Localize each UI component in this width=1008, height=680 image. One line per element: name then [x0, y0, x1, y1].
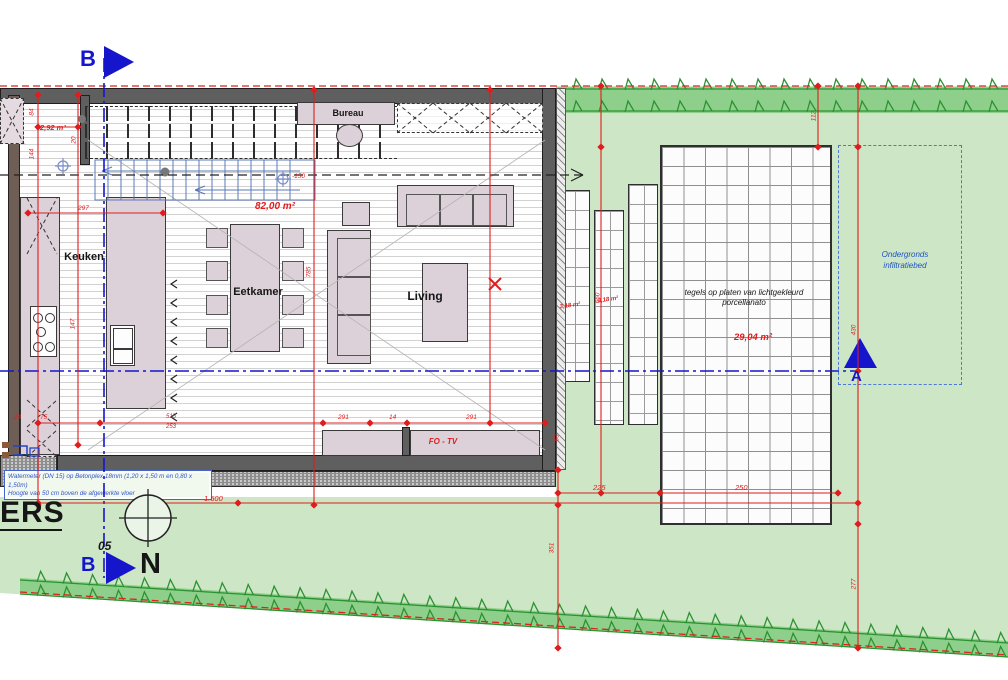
- dimension-label: 75: [40, 414, 47, 421]
- dimension-label: 84: [29, 108, 36, 115]
- dimension-label: 1.500: [204, 494, 223, 503]
- area-label-storage: 2,92 m²: [40, 123, 84, 132]
- level-value: -150: [292, 173, 305, 180]
- section-marker-b-top: B: [80, 46, 96, 72]
- cooktop-burners: [34, 314, 55, 352]
- sheet-number: 05: [98, 539, 111, 553]
- room-label-keuken: Keuken: [52, 251, 116, 263]
- dimension-label: 144: [29, 149, 36, 160]
- dimension-label: 20: [71, 136, 78, 143]
- watermeter-symbols: [2, 442, 39, 458]
- dimension-label: 430: [851, 325, 858, 336]
- terrace-material-label: tegels op platen van lichtgekleurd porce…: [664, 288, 824, 308]
- section-arrow-b-bottom: [106, 552, 136, 584]
- bar-stools: [171, 280, 177, 421]
- dimension-label: 250: [735, 483, 748, 492]
- floor-plan-canvas: Watermeter (DN 15) op Betonplex 18mm (1,…: [0, 0, 1008, 680]
- survey-circle: [119, 489, 177, 547]
- dimension-label: 515: [166, 414, 176, 420]
- dimension-label: 63: [554, 434, 561, 441]
- dimension-label: 785: [306, 267, 313, 278]
- infiltration-label-2: infiltratiebed: [860, 261, 950, 270]
- dimension-label: 253: [166, 424, 176, 430]
- title-block-text: ERS: [0, 497, 62, 531]
- north-label: N: [140, 548, 161, 581]
- dimension-label: 291: [466, 414, 477, 421]
- section-arrow-a: [844, 338, 877, 368]
- dimension-label: 351: [549, 543, 556, 554]
- dimension-label: 147: [70, 319, 77, 330]
- room-label-bureau: Bureau: [318, 108, 378, 118]
- area-label-main: 82,00 m²: [240, 201, 310, 212]
- section-arrow-b-top: [104, 46, 134, 78]
- dimension-label: 660: [595, 293, 602, 304]
- dimension-label: 112: [811, 111, 818, 121]
- infiltration-label-1: Ondergronds: [860, 250, 950, 259]
- dimension-label: 277: [851, 579, 858, 590]
- room-label-living: Living: [395, 289, 455, 303]
- staircase: [95, 160, 315, 200]
- section-marker-a: A: [851, 368, 862, 385]
- room-label-eetkamer: Eetkamer: [218, 286, 298, 298]
- dimension-label: 14: [14, 414, 21, 421]
- section-marker-b-bottom: B: [81, 554, 95, 577]
- fo-tv-label: FO - TV: [420, 437, 466, 446]
- axis-cross: [489, 278, 501, 290]
- column-dot: [78, 115, 86, 123]
- dimension-label: 291: [338, 414, 349, 421]
- dimension-label: 225: [593, 483, 606, 492]
- dimension-label: 297: [78, 205, 89, 212]
- dimension-label: 14: [389, 414, 396, 421]
- area-label-terrace: 29,04 m²: [718, 332, 788, 343]
- canopy-x-hatch: [397, 103, 543, 133]
